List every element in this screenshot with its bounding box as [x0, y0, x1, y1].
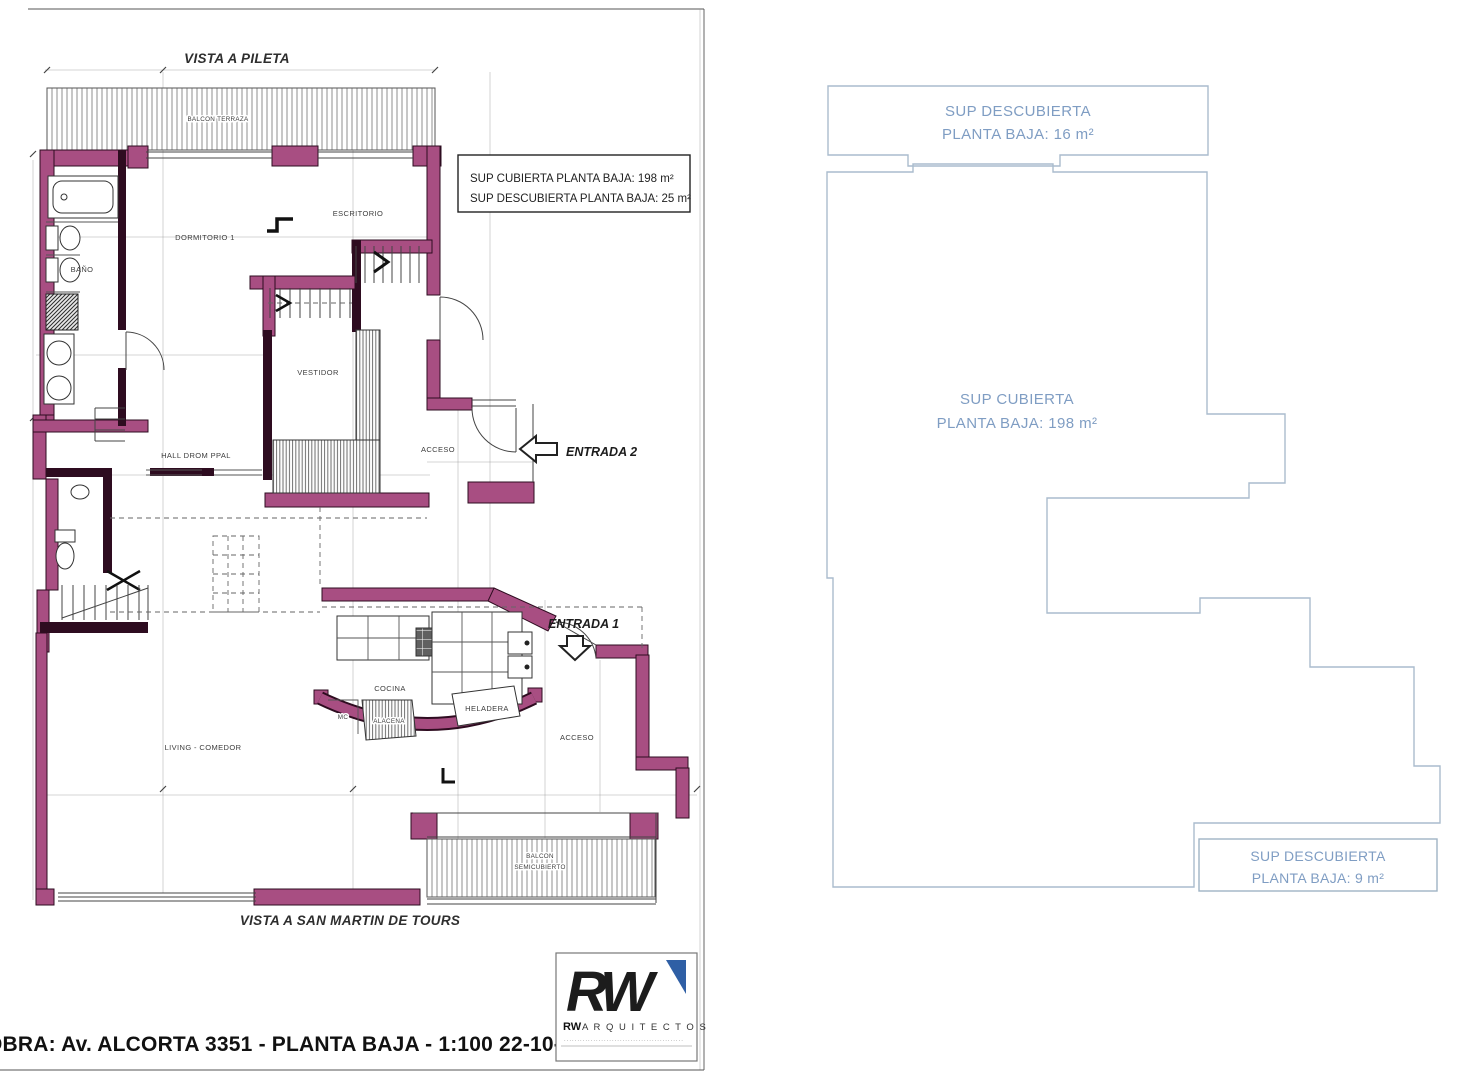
- label-vestidor: VESTIDOR: [297, 368, 339, 377]
- label-mc: MC: [338, 714, 349, 721]
- logo-tagline: ········································…: [564, 1038, 684, 1044]
- toilet: [46, 226, 58, 250]
- label-entrada2: ENTRADA 2: [566, 445, 637, 459]
- label-vista-san-martin: VISTA A SAN MARTIN DE TOURS: [240, 913, 460, 928]
- stair-arrow: [374, 252, 388, 272]
- label-area198-line2: PLANTA BAJA: 198 m²: [937, 415, 1098, 432]
- label-acceso-2: ACCESO: [421, 445, 455, 454]
- drawing-canvas: BALCON TERRAZA: [0, 0, 1461, 1080]
- entrada2-door-arc: [472, 408, 516, 452]
- logo-box: RW RW A R Q U I T E C T O S ············…: [556, 953, 707, 1061]
- entrada1-arrow-icon: [560, 636, 590, 660]
- label-heladera: HELADERA: [465, 704, 509, 713]
- floor-plan-sheet: BALCON TERRAZA: [0, 0, 1461, 1080]
- label-hall: HALL DROM PPAL: [161, 451, 231, 460]
- label-area16-line2: PLANTA BAJA: 16 m²: [942, 126, 1094, 143]
- logo-brand-bold: RW: [563, 1021, 582, 1033]
- toilette-wc: [56, 543, 74, 569]
- label-area9-line2: PLANTA BAJA: 9 m²: [1252, 870, 1384, 886]
- label-area198-line1: SUP CUBIERTA: [960, 391, 1074, 408]
- label-living: LIVING - COMEDOR: [165, 743, 242, 752]
- label-bano: BAÑO: [71, 265, 94, 274]
- shower: [46, 294, 78, 330]
- obra-title: OBRA: Av. ALCORTA 3351 - PLANTA BAJA - 1…: [0, 1033, 608, 1056]
- stair-vestidor: [268, 288, 352, 318]
- bath-door-arc: [126, 332, 164, 370]
- partitions-windows: [46, 150, 533, 901]
- label-acceso-1: ACCESO: [560, 733, 594, 742]
- balcon-terraza: BALCON TERRAZA: [47, 88, 435, 150]
- vestidor-closets: [273, 330, 380, 493]
- walls: [33, 146, 689, 905]
- info-line-2: SUP DESCUBIERTA PLANTA BAJA: 25 m²: [470, 193, 691, 205]
- balcon-semicubierto: BALCON SEMICUBIERTO: [413, 813, 658, 904]
- label-escritorio: ESCRITORIO: [333, 209, 384, 218]
- bathroom-fixtures: [44, 176, 164, 404]
- title-block: OBRA: Av. ALCORTA 3351 - PLANTA BAJA - 1…: [0, 953, 707, 1061]
- label-vista-pileta: VISTA A PILETA: [184, 51, 290, 66]
- toilette-fixtures: [55, 485, 140, 590]
- label-area9-line1: SUP DESCUBIERTA: [1250, 848, 1386, 864]
- label-dormitorio: DORMITORIO 1: [175, 233, 235, 242]
- entrada2-group: ENTRADA 2: [472, 408, 637, 462]
- surface-info-box: SUP CUBIERTA PLANTA BAJA: 198 m² SUP DES…: [458, 155, 691, 212]
- escritorio-door-arc: [440, 297, 483, 340]
- outline-cubierta-198: [827, 164, 1440, 887]
- door-x-mark: [107, 571, 140, 590]
- toilette-sink: [71, 485, 89, 499]
- bidet: [46, 258, 58, 282]
- label-balcon-semi-2: SEMICUBIERTO: [514, 864, 565, 871]
- info-line-1: SUP CUBIERTA PLANTA BAJA: 198 m²: [470, 173, 674, 185]
- left-sheet: BALCON TERRAZA: [0, 9, 707, 1070]
- label-area16-line1: SUP DESCUBIERTA: [945, 103, 1091, 120]
- entrada2-arrow-icon: [520, 436, 557, 462]
- label-alacena: ALACENA: [373, 718, 405, 725]
- label-balcon-terraza: BALCON TERRAZA: [187, 116, 249, 123]
- stair-escritorio: [356, 246, 483, 340]
- right-diagram: SUP DESCUBIERTA PLANTA BAJA: 16 m² SUP C…: [827, 86, 1440, 891]
- sink-2: [47, 376, 71, 400]
- stair-lower: [62, 585, 148, 620]
- label-cocina: COCINA: [374, 684, 406, 693]
- logo-brand-rest: A R Q U I T E C T O S: [582, 1022, 707, 1033]
- sink-1: [47, 341, 71, 365]
- label-balcon-semi-1: BALCON: [526, 853, 554, 860]
- logo-monogram: RW: [566, 960, 658, 1024]
- label-entrada1: ENTRADA 1: [548, 617, 619, 631]
